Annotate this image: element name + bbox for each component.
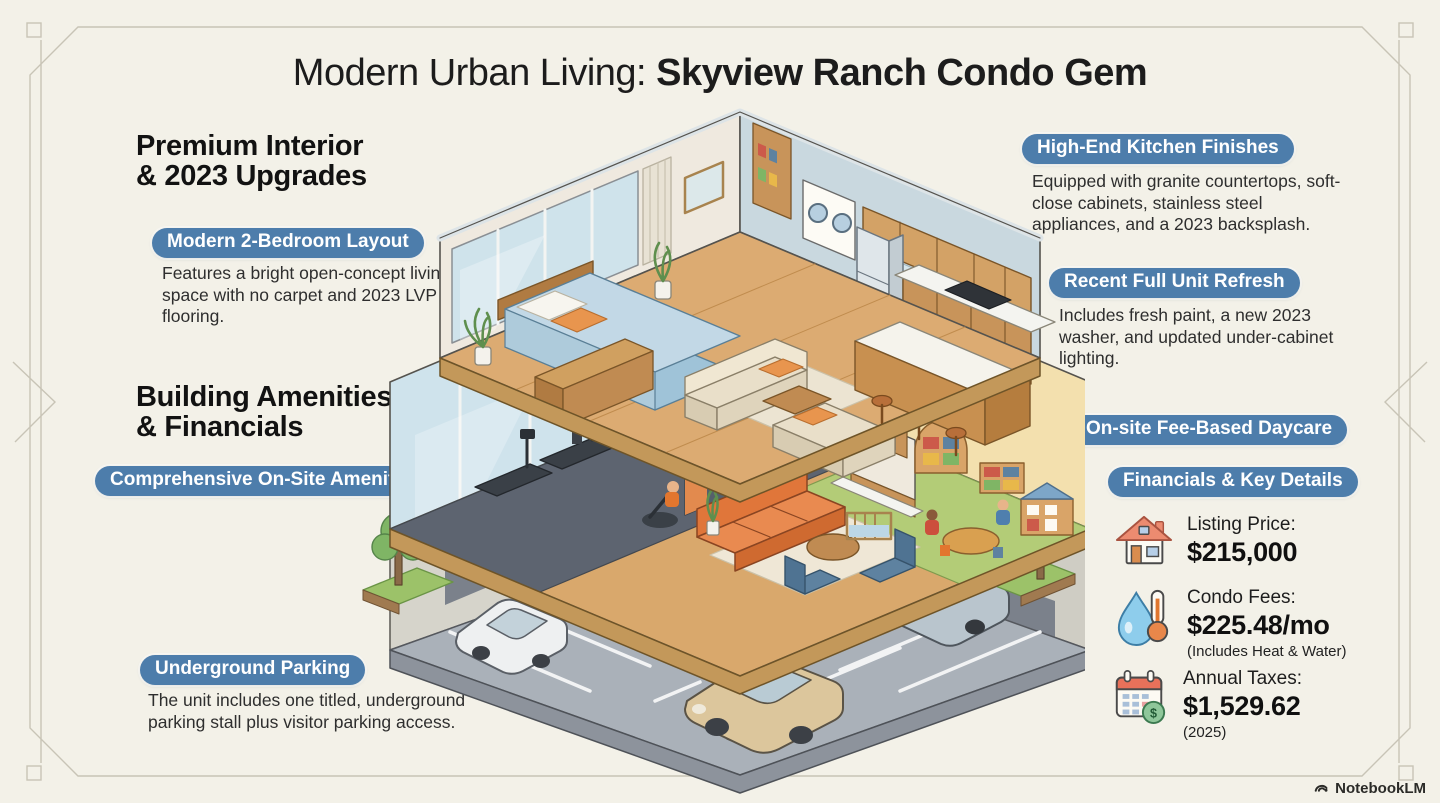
notebooklm-label: NotebookLM <box>1335 780 1426 797</box>
building-cutaway-illustration <box>355 85 1085 800</box>
financials-badge: Financials & Key Details <box>1108 467 1358 497</box>
annual-taxes-row: $ Annual Taxes: $1,529.62 (2025) <box>1111 666 1411 741</box>
condo-fees-label: Condo Fees: <box>1187 587 1347 609</box>
unit-refresh-text: Includes fresh paint, a new 2023 washer,… <box>1059 305 1374 370</box>
notebooklm-watermark: NotebookLM <box>1313 779 1426 797</box>
svg-text:$: $ <box>1150 706 1157 720</box>
underground-parking-badge: Underground Parking <box>140 655 365 685</box>
annual-taxes-value: $1,529.62 <box>1183 691 1302 722</box>
unit-refresh-badge: Recent Full Unit Refresh <box>1049 268 1300 298</box>
daycare-badge: On-site Fee-Based Daycare <box>1071 415 1347 445</box>
apartment-bookshelf <box>753 123 791 219</box>
annual-taxes-note: (2025) <box>1183 724 1302 741</box>
calendar-dollar-icon: $ <box>1111 666 1169 726</box>
listing-price-row: Listing Price: $215,000 <box>1115 512 1415 570</box>
notebooklm-logo-icon <box>1313 779 1331 797</box>
building-amenities-heading: Building Amenities & Financials <box>136 383 392 443</box>
condo-fees-note: (Includes Heat & Water) <box>1187 643 1347 660</box>
listing-price-value: $215,000 <box>1187 537 1297 568</box>
annual-taxes-label: Annual Taxes: <box>1183 668 1302 690</box>
premium-interior-heading: Premium Interior & 2023 Upgrades <box>136 132 367 192</box>
condo-fees-row: Condo Fees: $225.48/mo (Includes Heat & … <box>1115 585 1415 660</box>
house-icon <box>1115 512 1173 570</box>
condo-fees-value: $225.48/mo <box>1187 610 1347 641</box>
water-thermometer-icon <box>1115 585 1173 647</box>
listing-price-label: Listing Price: <box>1187 514 1297 536</box>
